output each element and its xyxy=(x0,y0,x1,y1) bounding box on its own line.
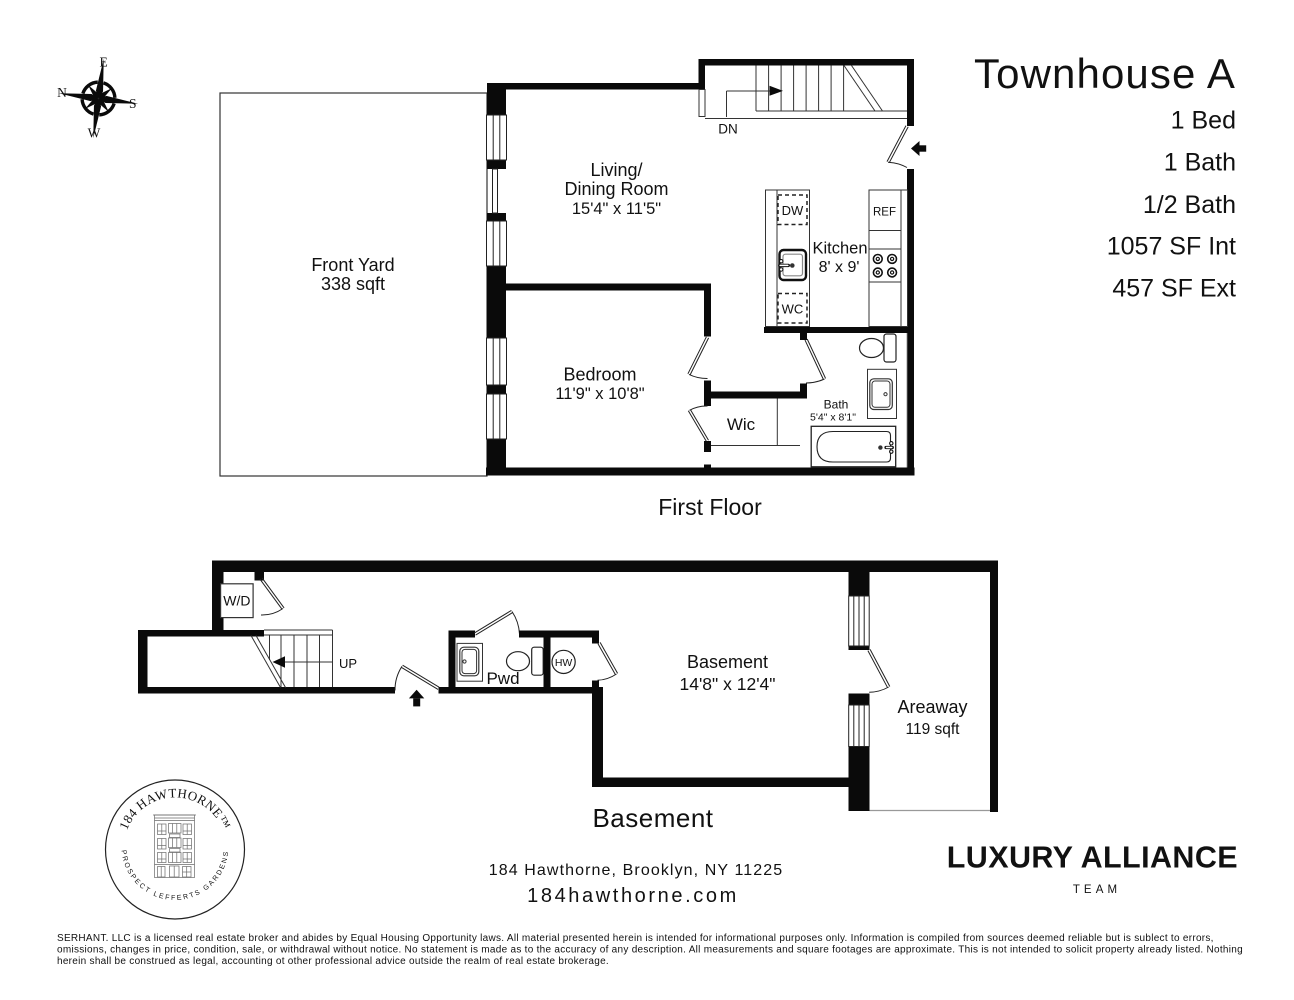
svg-text:Pwd: Pwd xyxy=(486,669,519,688)
svg-text:herein shall be construed as l: herein shall be construed as legal, acco… xyxy=(57,956,609,967)
svg-text:omissions, changes in price, c: omissions, changes in price, condition, … xyxy=(57,945,1243,956)
svg-text:HW: HW xyxy=(555,657,573,669)
svg-text:REF: REF xyxy=(873,207,896,219)
svg-text:15'4" x 11'5": 15'4" x 11'5" xyxy=(572,200,661,218)
svg-text:1057 SF Int: 1057 SF Int xyxy=(1107,233,1236,261)
svg-text:Living/: Living/ xyxy=(590,160,642,180)
svg-text:DW: DW xyxy=(782,203,804,218)
svg-text:119 sqft: 119 sqft xyxy=(905,721,960,738)
svg-text:W/D: W/D xyxy=(223,593,250,609)
svg-text:Front Yard: Front Yard xyxy=(311,255,394,275)
svg-text:N: N xyxy=(57,85,67,100)
svg-text:LUXURY ALLIANCE: LUXURY ALLIANCE xyxy=(947,841,1238,875)
svg-text:First Floor: First Floor xyxy=(658,494,762,520)
svg-text:Bedroom: Bedroom xyxy=(563,365,636,385)
svg-text:Kitchen: Kitchen xyxy=(812,240,867,258)
svg-text:Dining Room: Dining Room xyxy=(564,179,668,199)
svg-text:S: S xyxy=(129,96,137,111)
svg-text:1 Bed: 1 Bed xyxy=(1171,107,1236,135)
svg-text:1/2 Bath: 1/2 Bath xyxy=(1143,191,1236,219)
svg-text:5'4" x 8'1": 5'4" x 8'1" xyxy=(810,412,856,424)
svg-text:Bath: Bath xyxy=(824,398,849,412)
svg-text:14'8" x 12'4": 14'8" x 12'4" xyxy=(680,674,776,694)
svg-text:WC: WC xyxy=(782,302,804,317)
svg-text:E: E xyxy=(99,55,107,70)
svg-text:11'9" x 10'8": 11'9" x 10'8" xyxy=(555,385,644,403)
svg-text:Wic: Wic xyxy=(727,415,756,434)
svg-text:UP: UP xyxy=(339,656,357,671)
svg-text:TEAM: TEAM xyxy=(1073,884,1121,896)
svg-text:W: W xyxy=(88,126,101,141)
svg-text:1 Bath: 1 Bath xyxy=(1164,149,1236,177)
svg-text:SERHANT. LLC is a licensed rea: SERHANT. LLC is a licensed real estate b… xyxy=(57,933,1214,944)
svg-text:Townhouse A: Townhouse A xyxy=(974,50,1236,97)
svg-text:Basement: Basement xyxy=(592,803,713,833)
svg-text:338 sqft: 338 sqft xyxy=(321,274,385,294)
svg-text:DN: DN xyxy=(718,122,738,137)
svg-text:Basement: Basement xyxy=(687,652,768,672)
svg-text:457 SF Ext: 457 SF Ext xyxy=(1112,275,1236,303)
svg-text:Areaway: Areaway xyxy=(897,697,967,717)
svg-text:8' x 9': 8' x 9' xyxy=(819,259,860,276)
svg-text:184hawthorne.com: 184hawthorne.com xyxy=(527,885,739,907)
svg-text:184 Hawthorne, Brooklyn, NY 11: 184 Hawthorne, Brooklyn, NY 11225 xyxy=(489,862,784,879)
